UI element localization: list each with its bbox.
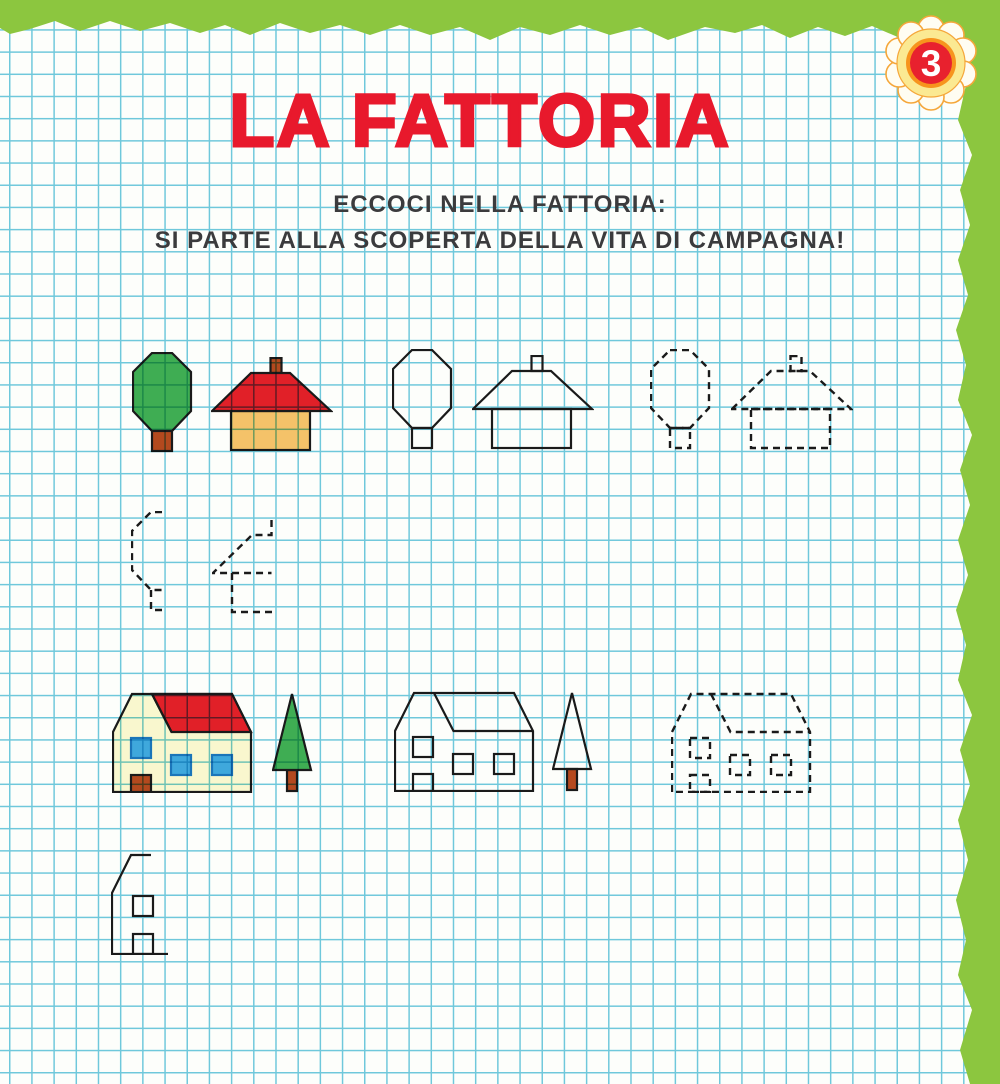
- tree-trace-partial-icon: [131, 511, 192, 612]
- tree-colored-icon: [132, 352, 193, 453]
- tree-dashed-icon: [650, 349, 711, 450]
- page-title: LA FATTORIA: [0, 78, 960, 163]
- house-trace-partial-icon: [212, 519, 334, 614]
- subtitle-line-1: ECCOCI NELLA FATTORIA:: [0, 191, 1000, 219]
- cottage-outline-icon: [394, 691, 535, 792]
- house-colored-icon: [211, 357, 333, 452]
- pine-outline-icon: [552, 691, 593, 792]
- cottage-trace-partial-icon: [111, 853, 181, 955]
- house-outline-icon: [472, 355, 594, 450]
- cottage-colored-icon: [112, 692, 253, 793]
- tree-outline-icon: [392, 349, 453, 450]
- subtitle-line-2: SI PARTE ALLA SCOPERTA DELLA VITA DI CAM…: [0, 227, 1000, 255]
- cottage-dashed-icon: [671, 692, 812, 793]
- pine-colored-icon: [272, 692, 313, 793]
- house-dashed-icon: [731, 355, 853, 450]
